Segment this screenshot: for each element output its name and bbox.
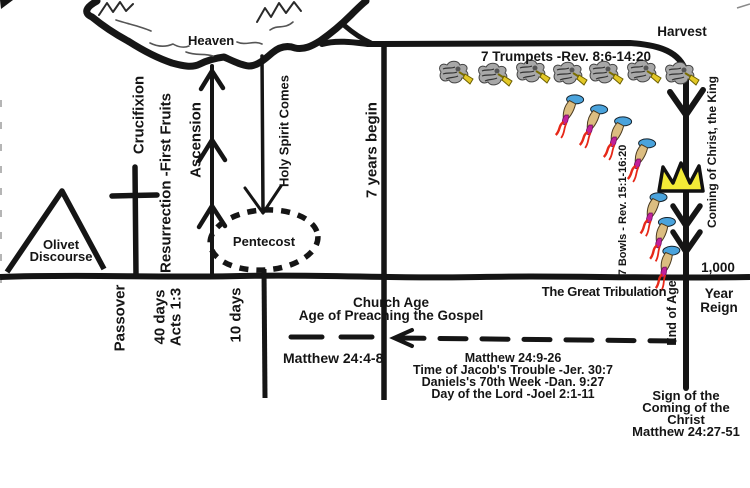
tribulation-references-block: Matthew 24:9-26 Time of Jacob's Trouble … [413, 352, 613, 400]
matthew-24-4-8-label: Matthew 24:4-8 [283, 350, 383, 366]
thousand-label: 1,000 [701, 260, 735, 275]
tribulation-dashed-arrow [291, 330, 674, 346]
pentecost-label: Pentecost [233, 234, 295, 249]
olivet-discourse-label: Olivet Discourse [30, 239, 93, 263]
crucifixion-label: Crucifixion [131, 76, 148, 154]
seven-years-label: 7 years begin [364, 102, 381, 198]
heaven-label: Heaven [188, 33, 234, 48]
scan-corner-mark [0, 0, 13, 9]
timeline-diagram: Heaven Harvest 7 Trumpets -Rev. 8:6-14:2… [0, 0, 750, 488]
trumpet-angel-icon [548, 60, 588, 90]
ascension-label: Ascension [188, 102, 205, 178]
trumpet-angel-icon [660, 60, 700, 90]
year-reign-label: Year Reign [700, 287, 738, 315]
pentecost-marker-line [264, 269, 265, 398]
forty-days-label: 40 days [152, 289, 169, 344]
timeline-axis [0, 276, 750, 278]
trumpet-angel-icon [473, 61, 513, 91]
passover-label: Passover [112, 285, 129, 352]
end-of-age-label: End of Age [665, 280, 679, 346]
ten-days-label: 10 days [228, 287, 245, 342]
church-age-label: Church Age Age of Preaching the Gospel [299, 296, 484, 322]
crown-icon [659, 163, 703, 191]
trumpet-angel-icon [434, 59, 474, 89]
harvest-label: Harvest [657, 24, 707, 39]
coming-of-christ-label: Coming of Christ, the King [705, 76, 719, 228]
sign-of-coming-block: Sign of the Coming of the Christ Matthew… [632, 390, 740, 438]
seven-trumpets-label: 7 Trumpets -Rev. 8:6-14:20 [481, 49, 651, 64]
holy-spirit-label: Holy Spirit Comes [277, 75, 292, 187]
resurrection-label: Resurrection -First Fruits [158, 93, 175, 273]
acts-1-3-label: Acts 1:3 [168, 288, 185, 346]
seven-bowls-label: 7 Bowls - Rev. 15:1-16:20 [617, 145, 629, 276]
cross-shape [112, 167, 157, 276]
scan-edge-mark [737, 4, 750, 8]
great-tribulation-label: The Great Tribulation [542, 284, 666, 299]
